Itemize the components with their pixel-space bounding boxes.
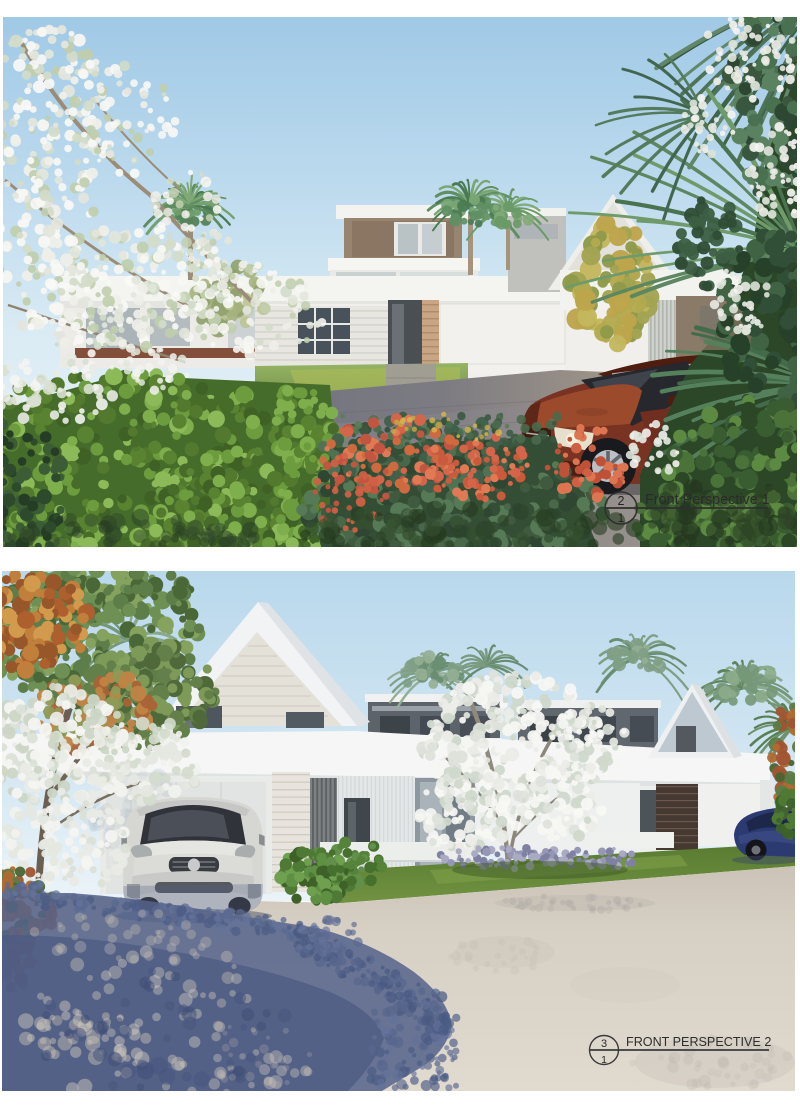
svg-text:Front Perspective 1: Front Perspective 1 <box>645 492 770 508</box>
svg-text:1: 1 <box>618 513 624 525</box>
svg-text:2: 2 <box>618 494 625 508</box>
